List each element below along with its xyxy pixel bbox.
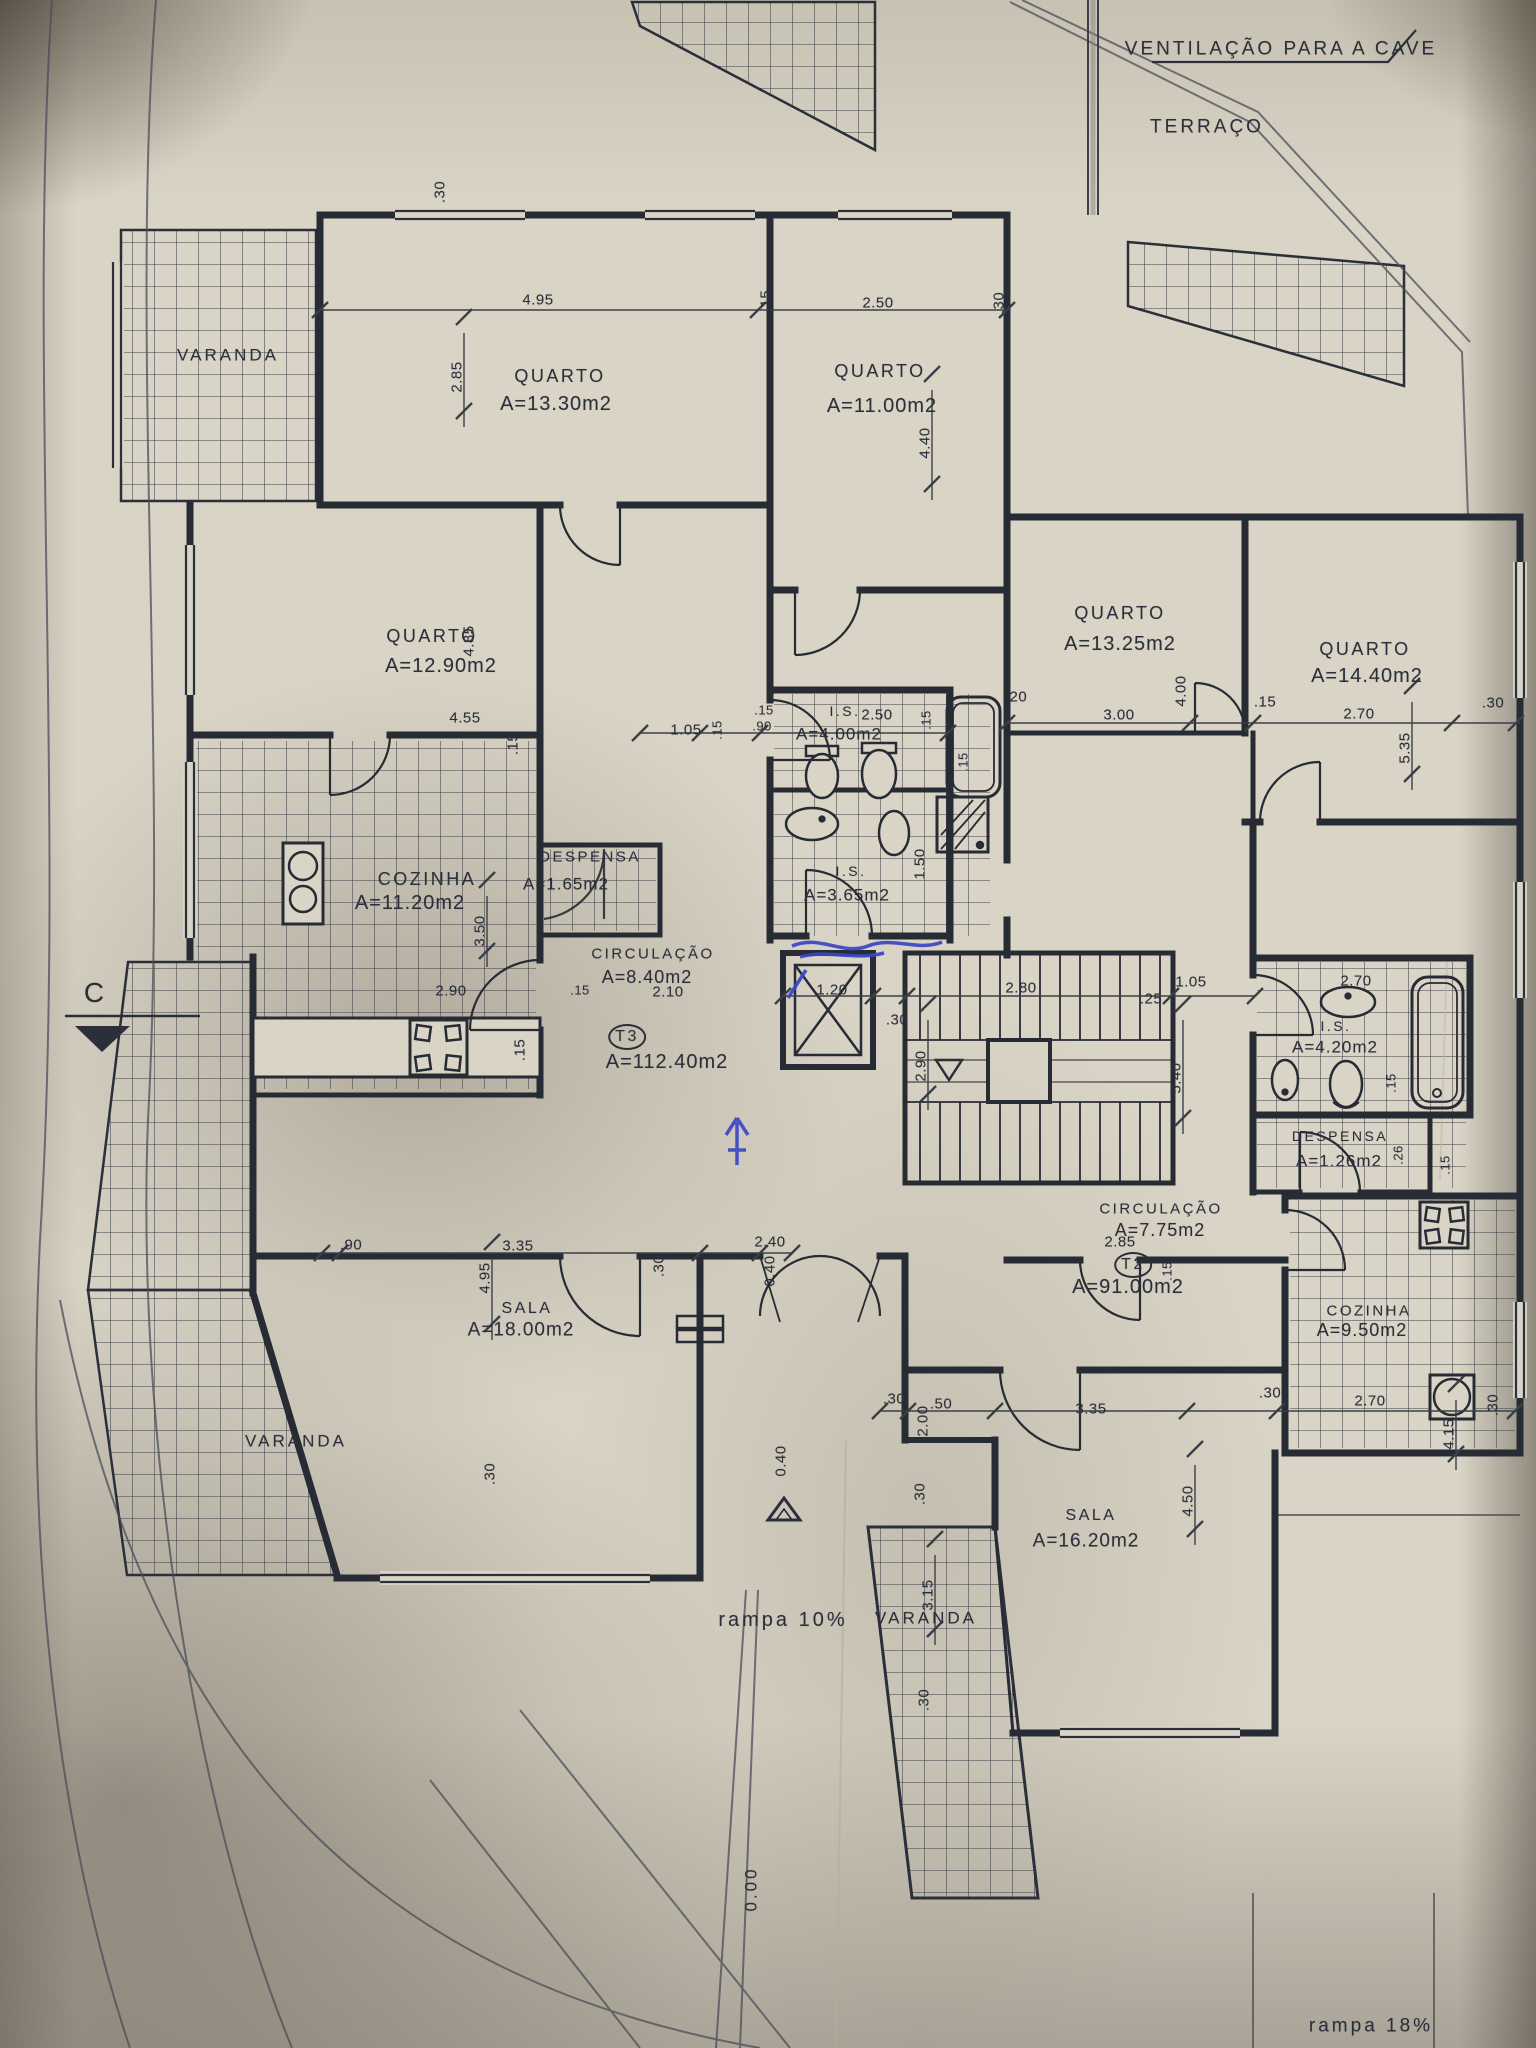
dimension-label: .50: [930, 1397, 952, 1412]
room-area-label: A=13.30m2: [500, 394, 612, 414]
room-label: COZINHA: [378, 870, 477, 888]
note-label: rampa 10%: [718, 1610, 847, 1630]
dimension-label: .25: [1140, 992, 1162, 1007]
room-area-label: A=1.65m2: [523, 876, 609, 893]
room-area-label: A=4.20m2: [1292, 1039, 1378, 1056]
dimension-label: .15: [759, 290, 774, 312]
dimension-label: .30: [1482, 696, 1504, 711]
dimension-label: 4.95: [522, 293, 553, 308]
dimension-label: 0.40: [763, 1255, 778, 1286]
dimension-label: 5.40: [1169, 1062, 1184, 1093]
room-label: I.S.: [1320, 1019, 1351, 1033]
room-label: QUARTO: [514, 367, 605, 385]
room-label: CIRCULAÇÃO: [591, 947, 714, 962]
note-label: rampa 18%: [1309, 2017, 1433, 2036]
room-area-label: A=9.50m2: [1317, 1321, 1408, 1339]
room-area-label: A=12.90m2: [385, 656, 497, 676]
dimension-label: 1.05: [1175, 975, 1206, 990]
dimension-label: 2.70: [1340, 974, 1371, 989]
room-label: QUARTO: [1319, 640, 1410, 658]
dimension-label: .15: [920, 710, 933, 730]
room-area-label: A=16.20m2: [1033, 1532, 1140, 1551]
dimension-label: .30: [992, 292, 1007, 314]
room-area-label: A=4.00m2: [796, 726, 882, 743]
dimension-label: .30: [1259, 1386, 1281, 1401]
room-label: DESPENSA: [539, 850, 641, 865]
unit-area-label: A=112.40m2: [606, 1052, 729, 1072]
dimension-label: .15: [754, 704, 774, 717]
dimension-label: 1.05: [670, 723, 701, 738]
dimension-label: .26: [1392, 1145, 1405, 1165]
dimension-label: 2.85: [450, 361, 465, 392]
dimension-label: .30: [913, 1483, 928, 1505]
dimension-label: 2.90: [435, 984, 466, 999]
dimension-label: 4.00: [1174, 675, 1189, 706]
dimension-label: 1.20: [816, 983, 847, 998]
dimension-label: 0.40: [774, 1445, 789, 1476]
room-label: I.S.: [835, 864, 866, 878]
unit-id-label: T2: [1114, 1252, 1152, 1278]
dimension-label: 2.00: [916, 1405, 931, 1436]
dimension-label: 2.85: [1104, 1235, 1135, 1250]
room-area-label: A=11.00m2: [827, 396, 937, 416]
floor-plan-photo: QUARTOA=13.30m2QUARTOA=11.00m2QUARTOA=12…: [0, 0, 1536, 2048]
room-label: SALA: [1066, 1508, 1117, 1524]
room-label: QUARTO: [1074, 604, 1165, 622]
plan-text-layer: QUARTOA=13.30m2QUARTOA=11.00m2QUARTOA=12…: [0, 0, 1536, 2048]
room-area-label: A=11.20m2: [355, 893, 465, 913]
dimension-label: 4.85: [462, 625, 477, 656]
room-area-label: A=3.65m2: [804, 887, 890, 904]
dimension-label: .30: [1486, 1394, 1501, 1416]
dimension-label: 4.40: [918, 427, 933, 458]
dimension-label: 3.15: [921, 1579, 936, 1610]
note-label: 0.00: [743, 1866, 760, 1911]
dimension-label: .15: [957, 752, 970, 772]
dimension-label: .30: [652, 1255, 667, 1277]
dimension-label: .15: [506, 733, 521, 755]
dimension-label: .30: [883, 1392, 905, 1407]
dimension-label: .15: [1254, 695, 1276, 710]
varanda-label: VARANDA: [245, 1433, 347, 1450]
dimension-label: .30: [483, 1463, 498, 1485]
dimension-label: 1.50: [913, 848, 928, 879]
dimension-label: .15: [570, 984, 590, 997]
dimension-label: 2.50: [862, 296, 893, 311]
dimension-label: 3.35: [502, 1239, 533, 1254]
note-label: C: [84, 979, 104, 1007]
dimension-label: .30: [886, 1013, 908, 1028]
varanda-label: VARANDA: [177, 347, 279, 364]
dimension-label: 3.35: [1075, 1402, 1106, 1417]
dimension-label: 2.40: [754, 1235, 785, 1250]
dimension-label: 2.70: [1354, 1394, 1385, 1409]
room-label: QUARTO: [834, 362, 925, 380]
dimension-label: .15: [1161, 1261, 1174, 1281]
room-area-label: A=14.40m2: [1311, 666, 1423, 686]
dimension-label: 2.50: [861, 708, 892, 723]
dimension-label: .15: [1439, 1155, 1452, 1175]
dimension-label: .30: [917, 1689, 932, 1711]
room-label: COZINHA: [1327, 1304, 1412, 1319]
dimension-label: 3.50: [473, 915, 488, 946]
note-label: VENTILAÇÃO PARA A CAVE: [1125, 40, 1437, 59]
room-area-label: A=1.26m2: [1296, 1153, 1382, 1170]
room-label: I.S.: [829, 704, 860, 718]
room-label: DESPENSA: [1292, 1129, 1388, 1143]
dimension-label: 2.80: [1005, 981, 1036, 996]
dimension-label: 4.55: [449, 711, 480, 726]
dimension-label: 2.90: [914, 1050, 929, 1081]
room-area-label: A=18.00m2: [468, 1321, 575, 1340]
dimension-label: 5.35: [1398, 732, 1413, 763]
varanda-label: VARANDA: [875, 1610, 977, 1627]
note-label: TERRAÇO: [1150, 118, 1264, 137]
dimension-label: .90: [340, 1238, 362, 1253]
dimension-label: 4.95: [478, 1262, 493, 1293]
dimension-label: .20: [1005, 690, 1027, 705]
dimension-label: 2.10: [652, 985, 683, 1000]
dimension-label: 3.00: [1103, 708, 1134, 723]
unit-id-label: T3: [608, 1024, 646, 1050]
dimension-label: 2.70: [1343, 707, 1374, 722]
room-label: CIRCULAÇÃO: [1099, 1202, 1222, 1217]
room-area-label: A=13.25m2: [1064, 634, 1176, 654]
dimension-label: .15: [1385, 1073, 1398, 1093]
dimension-label: .15: [711, 720, 724, 740]
dimension-label: .30: [433, 181, 448, 203]
dimension-label: .90: [752, 720, 772, 733]
dimension-label: 4.15: [1442, 1418, 1457, 1449]
dimension-label: 4.50: [1181, 1485, 1196, 1516]
room-label: SALA: [502, 1301, 553, 1317]
dimension-label: .15: [513, 1039, 528, 1061]
